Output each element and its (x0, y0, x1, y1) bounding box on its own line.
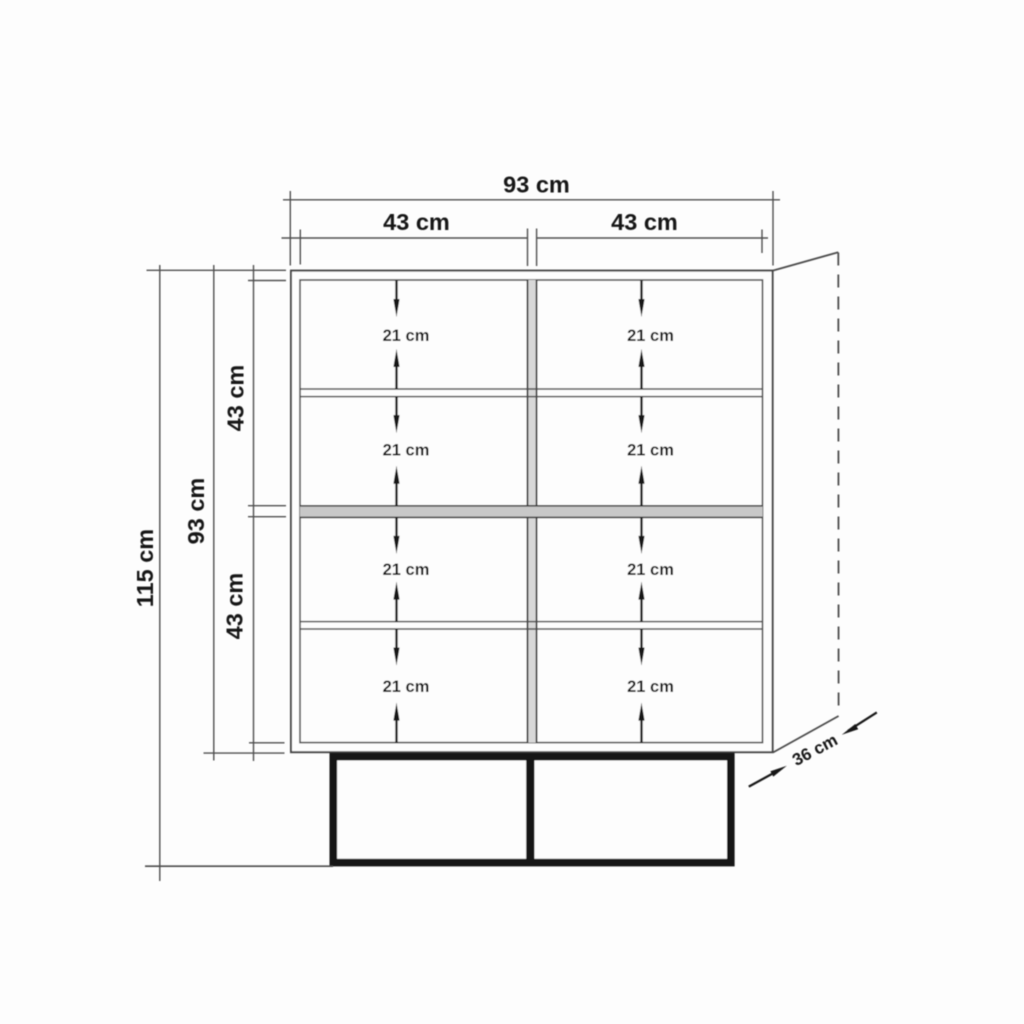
svg-text:115 cm: 115 cm (132, 529, 158, 607)
svg-text:21 cm: 21 cm (383, 678, 430, 696)
svg-text:43 cm: 43 cm (223, 365, 249, 432)
svg-text:21 cm: 21 cm (627, 327, 674, 345)
svg-text:21 cm: 21 cm (627, 561, 674, 579)
svg-text:93 cm: 93 cm (503, 172, 570, 198)
svg-text:43 cm: 43 cm (222, 573, 248, 640)
svg-text:43 cm: 43 cm (383, 209, 450, 235)
svg-text:93 cm: 93 cm (183, 478, 209, 545)
svg-text:21 cm: 21 cm (383, 441, 430, 459)
svg-text:21 cm: 21 cm (383, 561, 430, 579)
svg-text:21 cm: 21 cm (383, 327, 430, 345)
svg-text:21 cm: 21 cm (627, 678, 674, 696)
svg-text:43 cm: 43 cm (611, 209, 678, 235)
svg-text:21 cm: 21 cm (627, 441, 674, 459)
